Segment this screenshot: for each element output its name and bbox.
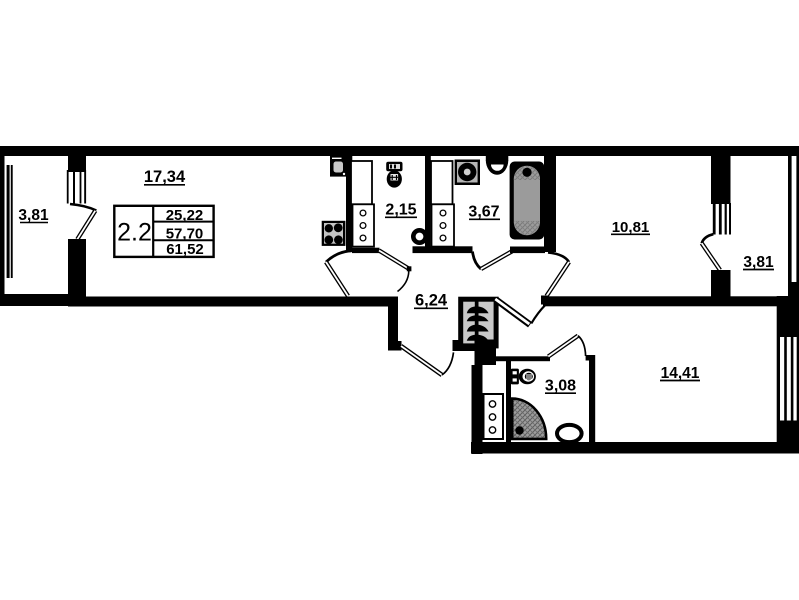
svg-text:3,81: 3,81 <box>18 207 49 224</box>
svg-text:2.2: 2.2 <box>117 219 152 247</box>
svg-text:6,24: 6,24 <box>415 292 448 310</box>
svg-text:25,22: 25,22 <box>166 207 204 224</box>
svg-text:3,08: 3,08 <box>545 378 576 395</box>
svg-text:3,81: 3,81 <box>743 254 774 271</box>
svg-text:10,81: 10,81 <box>612 219 650 236</box>
svg-text:17,34: 17,34 <box>144 168 186 186</box>
svg-text:14,41: 14,41 <box>661 365 700 382</box>
svg-text:2,15: 2,15 <box>385 202 416 219</box>
svg-text:3,67: 3,67 <box>468 204 499 221</box>
svg-text:57,70: 57,70 <box>166 225 204 242</box>
svg-text:61,52: 61,52 <box>166 241 204 258</box>
